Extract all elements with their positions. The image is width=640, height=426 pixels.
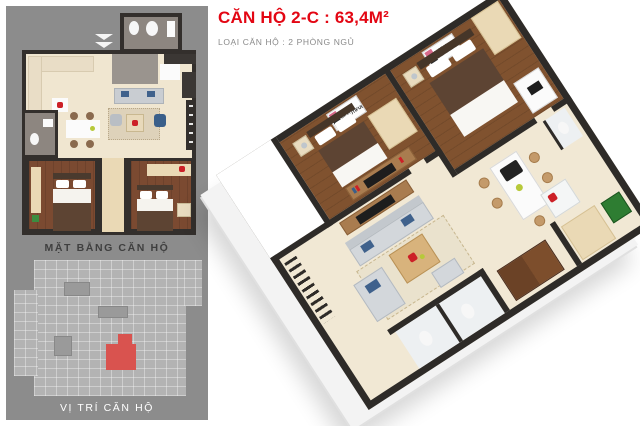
lamp-icon: [300, 141, 308, 149]
highlighted-unit-notch: [118, 334, 132, 344]
dining-chair: [70, 140, 78, 148]
books-icon: [398, 157, 404, 164]
pillow-blue: [365, 279, 382, 294]
floor-plan-3d: LIFE IS BEAUTIFUL LIFE IS BEAUTIFUL: [216, 0, 640, 410]
fruit-icon: [90, 126, 95, 131]
bar-chair: [532, 213, 547, 228]
wardrobe-2d: [164, 54, 196, 64]
apartment-title: CĂN HỘ 2-C : 63,4M²: [218, 8, 389, 28]
nightstand-2d: [177, 203, 191, 217]
entrance-chevron-icon: [95, 34, 113, 48]
toilet-icon: [129, 21, 139, 35]
bar-chair: [490, 195, 505, 210]
plan2d-bedroom-a: [26, 158, 98, 232]
site-core: [98, 306, 128, 318]
balcony-railing-slats: [284, 256, 335, 324]
pillow-blue: [360, 240, 374, 253]
dining-chair: [70, 112, 78, 120]
window-strip-2d: [186, 100, 196, 150]
refrigerator: [540, 179, 580, 219]
pillow-blue: [400, 214, 414, 227]
site-core: [64, 282, 90, 296]
toilet-icon: [556, 120, 571, 136]
header: CĂN HỘ 2-C : 63,4M² LOẠI CĂN HỘ : 2 PHÒN…: [218, 8, 389, 47]
bar-chair: [527, 150, 542, 165]
desk-2d: [31, 167, 41, 213]
fruit-bowl-icon: [514, 183, 524, 193]
bed-2d: [137, 185, 173, 231]
highlighted-unit: [106, 344, 136, 370]
bed-2d: [53, 173, 91, 231]
plan-caption: MẶT BẰNG CĂN HỘ: [6, 242, 208, 254]
site-core: [54, 336, 72, 356]
armchair-blue-2d: [154, 114, 166, 127]
bathroom-small: [543, 108, 583, 151]
washing-machine: [601, 191, 633, 223]
site-floorplate: [34, 260, 186, 396]
wardrobe-2d: [182, 72, 196, 98]
toilet-icon: [416, 328, 435, 348]
plan2d-bathroom-small: [22, 110, 58, 158]
flower-icon: [57, 102, 63, 108]
flower-icon: [547, 192, 558, 203]
sink-icon: [167, 21, 175, 37]
kitchen-island: [489, 151, 550, 220]
armchair-gray-2d: [110, 114, 122, 126]
mat-2d: [160, 64, 180, 80]
apartment-subtitle: LOẠI CĂN HỘ : 2 PHÒNG NGỦ: [218, 37, 389, 47]
sink-icon: [43, 119, 53, 127]
cooktop-icon: [499, 159, 523, 182]
wall: [436, 304, 463, 343]
bar-chair: [477, 175, 492, 190]
dining-chair: [86, 112, 94, 120]
flower-icon: [407, 252, 418, 263]
red-box-icon: [179, 166, 185, 172]
plan2d-bedroom-b: [128, 158, 194, 232]
toilet-icon: [30, 133, 39, 145]
bar-chair: [540, 170, 555, 185]
plan2d-entry-floor: [112, 54, 158, 84]
site-floorplate-wing: [184, 260, 202, 306]
location-caption: VỊ TRÍ CĂN HỘ: [6, 402, 208, 414]
flower-icon: [132, 120, 138, 126]
plan2d-hall: [102, 158, 124, 232]
laptop-icon: [527, 80, 544, 95]
toilet-icon: [146, 21, 158, 36]
sofa-2d: [114, 88, 164, 104]
site-floorplate-wing: [14, 290, 38, 376]
plant-icon: [419, 253, 426, 260]
plant-icon: [32, 215, 39, 222]
lamp-icon: [410, 72, 418, 80]
kitchen-counter: [28, 56, 42, 114]
plan2d-bathroom-top: [120, 13, 182, 53]
sidebar-panel: MẶT BẰNG CĂN HỘ VỊ TRÍ CĂN HỘ: [6, 6, 208, 420]
dining-chair: [86, 140, 94, 148]
toilet-icon: [458, 301, 477, 321]
